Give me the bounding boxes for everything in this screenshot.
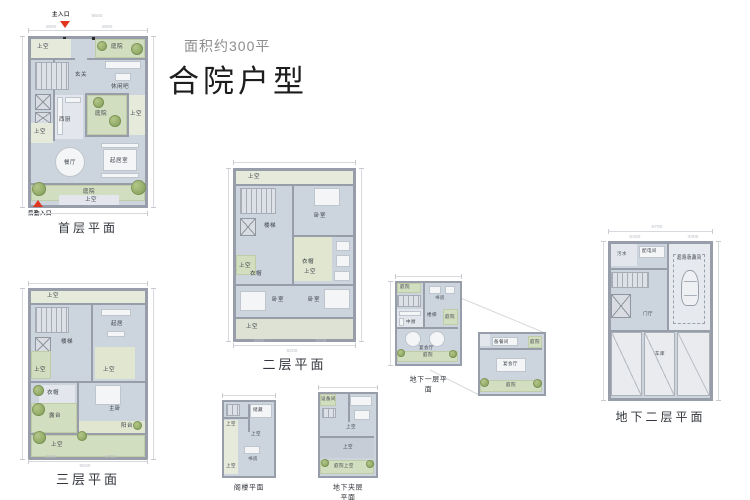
second-floor-plan: 上空 楼梯 卧室 上空 上空 衣帽 衣帽 卧室 卧室 上空 [233,168,356,342]
dimension-line [28,283,148,284]
dim-second-w1: 4500 [253,338,264,344]
room-label: 上空 [85,197,97,203]
room-label: 车库 [655,352,665,357]
tree-icon [321,459,329,467]
garage-bay [611,332,642,396]
wall [127,95,129,135]
room-label: 备餐间 [494,340,509,345]
room-label: 庭院 [423,353,433,358]
tree-icon [480,378,489,387]
plan-caption-third: 三层平面 [28,469,148,488]
room-label: 设备间 [321,397,336,402]
wall [397,327,458,329]
wall [31,303,145,305]
wall [87,58,145,60]
sofa [101,143,139,148]
room-label: 储藏 [253,408,263,413]
zone-void-left [31,351,51,379]
room-label: 餐厅 [64,160,76,166]
tree-icon [97,41,107,51]
area-subtitle: 面积约300平 [184,36,270,56]
plan-caption-first: 首层平面 [40,219,136,236]
room-label: 庭院 [530,340,540,345]
tree-icon [33,431,46,444]
tree-icon [449,350,457,358]
room-label: 起居室 [110,158,128,164]
room-label: 庭院上空 [334,464,354,469]
room-box [350,396,372,406]
dimension-line [318,387,378,388]
first-floor-plan: 上空 庭院 玄关 休闲吧 西厨 上空 庭院 上空 餐厅 起居室 庭院 上空 [28,36,148,208]
room-label: 露台 [49,413,61,419]
bed [314,188,340,206]
bath-fixture [336,255,350,267]
bed [324,289,350,309]
wall [236,284,353,286]
dim-second-total: 9200 [286,348,297,354]
room-label: 超跑收藏间 [677,256,702,261]
wall [480,348,542,350]
tree-icon [133,421,142,430]
dimension-line [233,162,356,163]
kitchen-counter [399,318,404,326]
room-label: 衣帽 [302,259,314,265]
room-label: 上空 [248,174,260,180]
room-label: 玄关 [75,72,87,78]
dim-third-w2: 6700 [105,454,116,460]
tree-icon [32,182,46,196]
dim-b2-total: 9700 [651,224,662,230]
dimension-line [233,345,356,346]
room-label: 上空 [346,425,356,430]
room-label: 书房 [248,457,258,462]
wall [294,235,353,237]
dimension-line [22,288,23,460]
basement2-plan: 污水 配电间 超跑收藏间 门厅 车库 [608,241,713,401]
wall [85,95,87,135]
dimension-line [153,36,154,208]
wall [85,135,129,137]
room-label: 上空 [34,129,46,135]
room-label: 书房 [435,296,445,301]
room-label: 配电间 [642,249,657,254]
attic-plan: 上空 储藏 上空 书房 上空 [222,400,276,478]
room-box [354,410,370,420]
bed [240,291,266,311]
dimension-line [22,36,23,208]
dim-first-w2: 4800 [101,24,112,30]
staircase [611,272,649,288]
room-label: 中厨 [406,320,416,325]
room-label: 上空 [47,293,59,299]
room-label: 卧室 [272,297,284,303]
tree-icon [109,115,121,127]
room-label: 宴会厅 [503,362,518,367]
desk [429,286,441,294]
room-label: 门厅 [643,312,653,317]
desk [445,286,455,294]
car-icon [681,270,699,306]
table [107,331,125,337]
dimension-line [603,241,604,401]
room-label: 阳台 [121,423,133,429]
room-label: 上空 [34,367,46,373]
room-label: 起居 [111,321,123,327]
room-label: 上空 [37,44,49,50]
tree-icon [33,385,44,396]
dim-total-first: 9600 [91,13,102,19]
main-entrance-label: 主入口 [52,10,70,18]
room-label: 衣帽 [47,390,59,396]
plan-caption-second: 二层平面 [233,354,356,373]
bed [95,385,121,405]
wall [85,93,129,95]
plan-caption-mezzanine: 地下夹层平面 [331,482,366,500]
dim-third-total: 9500 [79,463,90,469]
dim-second-w2: 4700 [315,338,326,344]
room-label: 上空 [103,367,115,373]
dimension-line [153,288,154,460]
room-label: 庭院 [445,315,455,320]
main-entrance-arrow-icon [60,21,70,28]
dimension-line [28,213,148,214]
plan-caption-basement2: 地下二层平面 [608,408,713,425]
elevator-shaft [611,294,631,318]
staircase [35,62,69,90]
zone-service [480,334,490,346]
staircase [35,307,69,333]
wall [224,417,250,419]
dimension-line [222,395,276,396]
room-label: 楼梯 [61,339,73,345]
sofa [105,61,141,69]
wall [423,283,425,327]
room-label: 宴会厅 [419,346,434,351]
wall [348,394,350,422]
room-label: 上空 [130,111,142,117]
garage-bay [677,332,710,396]
room-label: 衣帽 [250,271,262,277]
staircase [240,188,276,214]
bath-fixture [334,271,350,281]
dimension-line [608,231,713,232]
mezzanine-plan: 设备间 上空 上空 庭院上空 [318,392,378,478]
page-title: 合院户型 [168,56,308,101]
dimension-line [395,276,462,277]
dim-first-w1: 4800 [45,24,56,30]
tree-icon [131,43,143,55]
tree-icon [131,180,146,195]
wall [248,404,250,432]
dim-third-w1: 2800 [45,454,56,460]
basement1-plan: 庭院 书房 中厨 楼梯 庭院 宴会厅 庭院 [395,281,462,366]
dimension-line [228,168,229,342]
room-label: 污水 [617,252,627,257]
tree-icon [533,379,542,388]
wall [31,381,145,383]
bath-fixture [336,241,350,251]
elevator-shaft [35,94,51,110]
tree-icon [93,97,104,108]
room-label: 上空 [343,445,353,450]
room-label: 主卧 [109,406,121,412]
room-label: 上空 [226,464,236,469]
room-label: 庭院 [111,44,123,50]
plan-caption-attic: 阁楼平面 [233,482,264,492]
room-label: 楼梯 [264,223,276,229]
dimension-line [361,168,362,342]
sofa [101,309,131,316]
table [115,73,131,81]
dim-b2-w2: 3300 [687,234,698,240]
dimension-line [718,241,719,401]
room-label: 楼梯 [427,313,437,318]
tree-icon [397,349,405,357]
kitchen-counter [65,97,81,103]
garage-bay [644,332,675,396]
room-label: 卧室 [314,213,326,219]
sofa [101,173,139,178]
room-label: 上空 [246,324,258,330]
room-label: 卧室 [308,297,320,303]
wall [611,268,667,270]
room-label: 上空 [239,263,251,269]
room-label: 庭院 [506,383,516,388]
staircase [226,404,240,416]
desk [244,446,260,454]
room-label: 休闲吧 [111,84,129,90]
room-label: 上空 [51,442,63,448]
wall [236,184,353,186]
room-label: 庭院 [400,285,410,290]
tree-icon [366,460,374,468]
room-label: 庭院 [83,189,95,195]
room-label: 西厨 [59,117,71,123]
third-floor-plan: 上空 楼梯 起居 上空 上空 衣帽 露台 主卧 阳台 上空 [28,288,148,460]
dim-b2-w1: 6400 [629,234,640,240]
wall [91,305,93,381]
plan-caption-basement1: 地下一层平面 [409,374,448,394]
room-label: 上空 [304,269,316,275]
basement1-inset-plan: 备餐间 庭院 宴会厅 庭院 [478,332,546,396]
room-label: 庭院 [95,111,107,117]
room-label: 上空 [251,432,261,437]
floor-plan-sheet: 面积约300平 合院户型 主入口 9600 4800 4800 [0,0,750,500]
elevator-shaft [240,218,256,236]
tree-icon [32,403,45,416]
room-label: 上空 [226,422,236,427]
staircase [322,408,336,418]
kitchen-counter [399,311,421,316]
service-entrance-arrow-icon [33,200,43,207]
dimension-line [28,30,148,31]
zone-void-center [95,347,135,379]
tree-icon [77,431,87,441]
staircase [397,295,421,307]
dimension-line [390,281,391,366]
